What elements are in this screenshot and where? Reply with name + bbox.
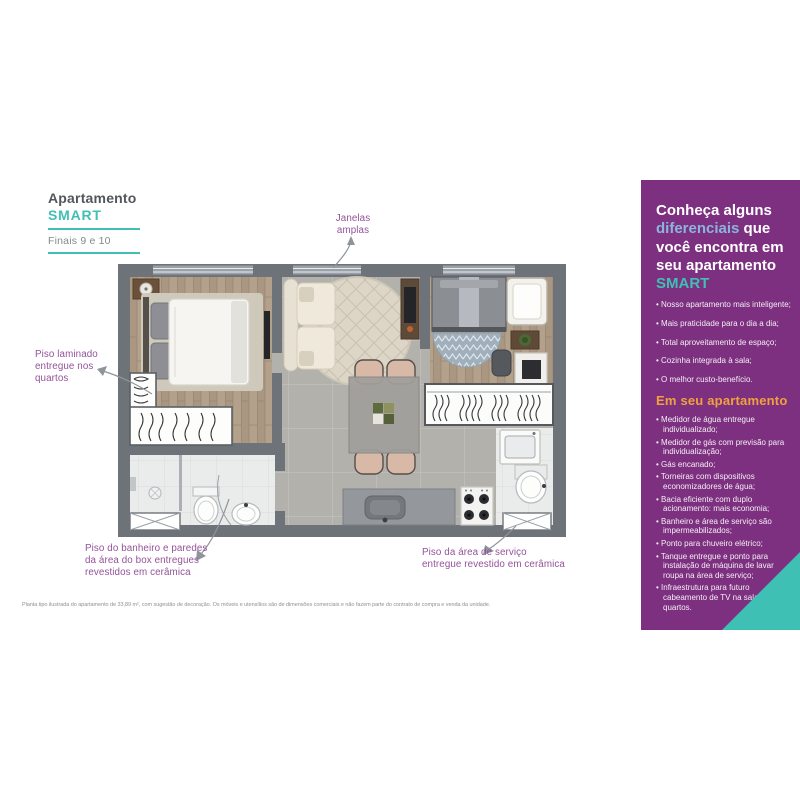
panel-headline: Conheça alguns diferenciais que você enc… <box>656 202 792 293</box>
bedroom2-wardrobe <box>425 384 553 425</box>
panel-subheading: Em seu apartamento <box>656 393 792 408</box>
feature-item: O melhor custo-benefício. <box>656 375 792 385</box>
feature-item: Gás encanado; <box>656 460 792 470</box>
plan-disclaimer: Planta tipo ilustrada do apartamento de … <box>22 602 490 608</box>
annotation-bathroom-ceramic: Piso do banheiro e paredes da área do bo… <box>85 543 245 579</box>
annotation-laminate-floor: Piso laminado entregue nos quartos <box>35 349 115 385</box>
feature-item: Cozinha integrada à sala; <box>656 356 792 366</box>
apartment-units: Finais 9 e 10 <box>48 235 168 247</box>
dining-chair <box>387 450 415 474</box>
laundry-tank <box>515 465 547 503</box>
feature-item: Medidor de gás com previsão para individ… <box>656 438 792 457</box>
laptop <box>522 360 541 379</box>
apartment-name: SMART <box>48 207 168 223</box>
washing-machine <box>500 430 540 464</box>
headline-part1: Conheça alguns <box>656 202 772 219</box>
top-windows <box>153 266 515 275</box>
feature-list-general: Nosso apartamento mais inteligente;Mais … <box>656 300 792 384</box>
annotation-service-ceramic: Piso da área de serviço entregue revesti… <box>422 547 592 571</box>
feature-item: Bacia eficiente com duplo acionamento: m… <box>656 495 792 514</box>
feature-item: Mais praticidade para o dia a dia; <box>656 319 792 329</box>
bathroom-window <box>130 513 180 530</box>
feature-item: Medidor de água entregue individualizado… <box>656 415 792 434</box>
floor-plan <box>113 253 573 545</box>
shower-screen <box>179 455 182 511</box>
tv-console <box>401 279 419 339</box>
features-panel: Conheça alguns diferenciais que você enc… <box>641 180 800 630</box>
feature-item: Nosso apartamento mais inteligente; <box>656 300 792 310</box>
sofa <box>284 279 335 371</box>
bedroom1-tv <box>264 311 270 359</box>
headline-highlight-teal: SMART <box>656 275 709 292</box>
stove <box>461 487 493 525</box>
apartment-label: Apartamento <box>48 190 168 206</box>
annotation-windows: Janelas amplas <box>317 213 389 237</box>
headline-highlight-blue: diferenciais <box>656 220 739 237</box>
divider-line <box>48 228 140 230</box>
feature-item: Tanque entregue e ponto para instalação … <box>656 552 792 581</box>
kitchen <box>343 487 493 525</box>
side-table <box>511 331 539 349</box>
feature-item: Torneiras com dispositivos economizadore… <box>656 472 792 491</box>
crib <box>507 278 547 325</box>
faucet <box>383 518 388 523</box>
bed1-pillow <box>151 303 171 339</box>
feature-item: Banheiro e área de serviço são impermeab… <box>656 517 792 536</box>
bathroom-sink <box>232 503 260 525</box>
feature-item: Total aproveitamento de espaço; <box>656 338 792 348</box>
plan-header: Apartamento SMART Finais 9 e 10 <box>48 190 168 254</box>
service-window <box>503 513 551 530</box>
desk <box>515 353 547 385</box>
desk-chair <box>492 350 511 376</box>
feature-item: Ponto para chuveiro elétrico; <box>656 539 792 549</box>
toilet <box>193 487 219 524</box>
brochure-page: Apartamento SMART Finais 9 e 10 <box>0 0 800 800</box>
dining-chair <box>355 450 383 474</box>
